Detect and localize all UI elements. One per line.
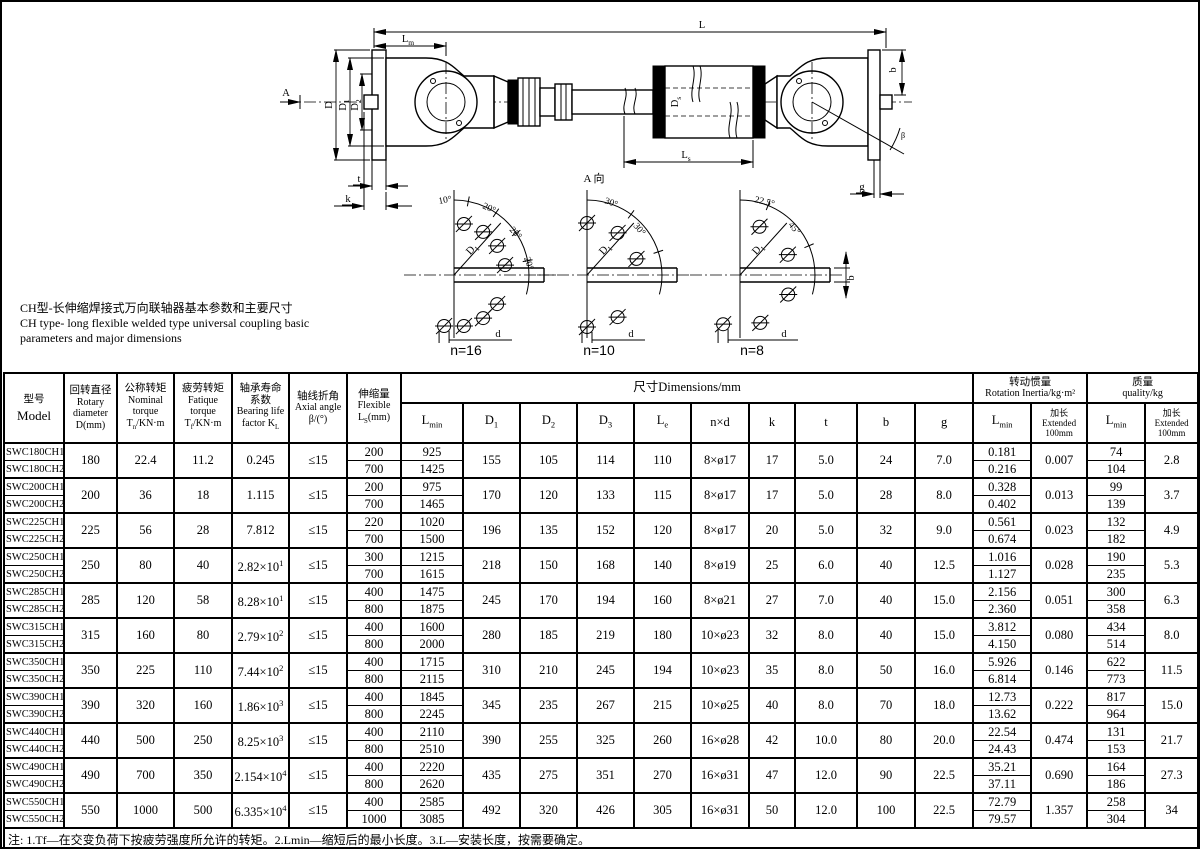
spec-cell: 1475 bbox=[401, 583, 463, 601]
spec-row: SWC250CH125080402.82×101≤153001215218150… bbox=[4, 548, 1198, 566]
spec-cell: 10×ø23 bbox=[691, 653, 749, 688]
spec-cell: 215 bbox=[634, 688, 691, 723]
spec-row: SWC490CH14907003502.154×104≤154002220435… bbox=[4, 758, 1198, 776]
spec-row: SWC225CH122556287.812≤152201020196135152… bbox=[4, 513, 1198, 531]
spec-cell: 7.44×102 bbox=[232, 653, 289, 688]
spec-cell: 8×ø19 bbox=[691, 548, 749, 583]
note-row-zh: 注: 1.Tf—在交变负荷下按疲劳强度所允许的转矩。2.Lmin—缩短后的最小长… bbox=[4, 828, 1198, 849]
spec-cell: 700 bbox=[347, 461, 401, 479]
col-header-inertia-lmin: Lmin bbox=[973, 403, 1031, 443]
spec-cell: SWC350CH1 bbox=[4, 653, 64, 671]
spec-cell: 0.051 bbox=[1031, 583, 1087, 618]
spec-cell: 24 bbox=[857, 443, 915, 478]
spec-cell: 72.79 bbox=[973, 793, 1031, 811]
spec-cell: 8.0 bbox=[795, 653, 857, 688]
seal-ring bbox=[653, 66, 665, 138]
seal-ring bbox=[753, 66, 765, 138]
datasheet-page: L Lm A D D1 D2 Ds t k bbox=[0, 0, 1200, 849]
spec-table-body: SWC180CH118022.411.20.245≤15200925155105… bbox=[4, 443, 1198, 828]
spec-cell: 80 bbox=[174, 618, 232, 653]
spec-cell: 35 bbox=[749, 653, 795, 688]
col-group-inertia: 转动惯量Rotation Inertia/kg·m² bbox=[973, 373, 1087, 403]
spec-cell: ≤15 bbox=[289, 478, 347, 513]
col-header-k: k bbox=[749, 403, 795, 443]
spec-cell: 12.5 bbox=[915, 548, 973, 583]
spec-cell: 350 bbox=[174, 758, 232, 793]
spec-cell: 6.0 bbox=[795, 548, 857, 583]
title-zh: CH型-长伸缩焊接式万向联轴器基本参数和主要尺寸 bbox=[20, 301, 360, 316]
spec-cell: 12.0 bbox=[795, 793, 857, 828]
spec-cell: 200 bbox=[347, 443, 401, 461]
col-header-le: Le bbox=[634, 403, 691, 443]
spec-cell: 152 bbox=[577, 513, 634, 548]
col-header-bearing-life: 轴承寿命系数Bearing lifefactor KL bbox=[232, 373, 289, 443]
spec-cell: 700 bbox=[347, 496, 401, 514]
spec-cell: 400 bbox=[347, 793, 401, 811]
spec-cell: 0.690 bbox=[1031, 758, 1087, 793]
spec-cell: 20.0 bbox=[915, 723, 973, 758]
spec-cell: 32 bbox=[749, 618, 795, 653]
spec-cell: 32 bbox=[857, 513, 915, 548]
spec-cell: 153 bbox=[1087, 741, 1145, 759]
spec-cell: 440 bbox=[64, 723, 117, 758]
spec-table-wrap: 型号Model 回转直径RotarydiameterD(mm) 公称转矩Nomi… bbox=[3, 372, 1199, 849]
spec-cell: 22.5 bbox=[915, 758, 973, 793]
diagram-D1-label: D1 bbox=[464, 241, 481, 258]
spec-cell: 42 bbox=[749, 723, 795, 758]
diagram-D1-label: D1 bbox=[597, 241, 614, 258]
spec-cell: 2.154×104 bbox=[232, 758, 289, 793]
spec-cell: ≤15 bbox=[289, 513, 347, 548]
col-header-mass-extended: 加长Extended100mm bbox=[1145, 403, 1198, 443]
spec-cell: 700 bbox=[347, 566, 401, 584]
spec-cell: 160 bbox=[117, 618, 174, 653]
spec-cell: 28 bbox=[857, 478, 915, 513]
dim-b-label: b bbox=[888, 67, 899, 72]
col-header-model: 型号Model bbox=[4, 373, 64, 443]
spec-cell: 196 bbox=[463, 513, 520, 548]
spec-cell: 2.79×102 bbox=[232, 618, 289, 653]
spec-cell: 2.8 bbox=[1145, 443, 1198, 478]
spec-cell: 27.3 bbox=[1145, 758, 1198, 793]
col-group-dimensions: 尺寸Dimensions/mm bbox=[401, 373, 973, 403]
spec-cell: SWC250CH1 bbox=[4, 548, 64, 566]
spec-cell: 8.25×103 bbox=[232, 723, 289, 758]
spec-cell: 120 bbox=[634, 513, 691, 548]
dim-L-label: L bbox=[699, 20, 705, 31]
spec-cell: ≤15 bbox=[289, 793, 347, 828]
title-en-line2: parameters and major dimensions bbox=[20, 331, 360, 346]
spec-cell: 1.127 bbox=[973, 566, 1031, 584]
spec-cell: 5.3 bbox=[1145, 548, 1198, 583]
spec-cell: 40 bbox=[749, 688, 795, 723]
spec-cell: 17 bbox=[749, 443, 795, 478]
spec-cell: 79.57 bbox=[973, 811, 1031, 829]
spec-cell: 700 bbox=[347, 531, 401, 549]
spec-cell: 170 bbox=[463, 478, 520, 513]
spec-cell: 114 bbox=[577, 443, 634, 478]
spec-cell: SWC180CH2 bbox=[4, 461, 64, 479]
spec-cell: 190 bbox=[1087, 548, 1145, 566]
spec-cell: SWC490CH2 bbox=[4, 776, 64, 794]
spec-cell: 1000 bbox=[347, 811, 401, 829]
left-key bbox=[364, 95, 378, 109]
spec-cell: 0.013 bbox=[1031, 478, 1087, 513]
spec-cell: 800 bbox=[347, 706, 401, 724]
spec-cell: 800 bbox=[347, 601, 401, 619]
spec-cell: 258 bbox=[1087, 793, 1145, 811]
spec-cell: 1.86×103 bbox=[232, 688, 289, 723]
spec-cell: 250 bbox=[174, 723, 232, 758]
spec-table: 型号Model 回转直径RotarydiameterD(mm) 公称转矩Nomi… bbox=[3, 372, 1199, 849]
spec-cell: 2585 bbox=[401, 793, 463, 811]
diagram-angle-label: 20° bbox=[521, 256, 536, 272]
spec-cell: 40 bbox=[857, 583, 915, 618]
spec-cell: 800 bbox=[347, 741, 401, 759]
spec-cell: 132 bbox=[1087, 513, 1145, 531]
col-header-axial-angle: 轴线折角Axial angleβ/(°) bbox=[289, 373, 347, 443]
spec-cell: 16×ø31 bbox=[691, 758, 749, 793]
spec-cell: 2.156 bbox=[973, 583, 1031, 601]
spec-cell: SWC350CH2 bbox=[4, 671, 64, 689]
spec-cell: 1215 bbox=[401, 548, 463, 566]
spec-cell: 200 bbox=[347, 478, 401, 496]
spec-cell: 200 bbox=[64, 478, 117, 513]
spec-cell: 964 bbox=[1087, 706, 1145, 724]
spec-cell: 1600 bbox=[401, 618, 463, 636]
spec-cell: 186 bbox=[1087, 776, 1145, 794]
spec-cell: 37.11 bbox=[973, 776, 1031, 794]
spec-cell: 400 bbox=[347, 583, 401, 601]
spec-cell: 390 bbox=[463, 723, 520, 758]
spec-cell: ≤15 bbox=[289, 688, 347, 723]
spec-cell: 15.0 bbox=[915, 583, 973, 618]
spec-cell: 358 bbox=[1087, 601, 1145, 619]
spec-cell: ≤15 bbox=[289, 548, 347, 583]
spec-cell: 0.245 bbox=[232, 443, 289, 478]
spec-cell: 1.357 bbox=[1031, 793, 1087, 828]
spec-cell: 70 bbox=[857, 688, 915, 723]
spec-cell: 28 bbox=[174, 513, 232, 548]
spec-cell: SWC390CH2 bbox=[4, 706, 64, 724]
spec-cell: 0.561 bbox=[973, 513, 1031, 531]
spec-cell: 17 bbox=[749, 478, 795, 513]
spec-cell: 400 bbox=[347, 723, 401, 741]
spec-cell: 400 bbox=[347, 653, 401, 671]
dim-D-label: D bbox=[324, 101, 335, 109]
spec-row: SWC550CH155010005006.335×104≤15400258549… bbox=[4, 793, 1198, 811]
spec-cell: 110 bbox=[174, 653, 232, 688]
spec-cell: 550 bbox=[64, 793, 117, 828]
spec-cell: 7.812 bbox=[232, 513, 289, 548]
spec-cell: 490 bbox=[64, 758, 117, 793]
spec-cell: 5.0 bbox=[795, 443, 857, 478]
spec-cell: 0.216 bbox=[973, 461, 1031, 479]
col-header-d2: D2 bbox=[520, 403, 577, 443]
spec-cell: 0.080 bbox=[1031, 618, 1087, 653]
spec-cell: 110 bbox=[634, 443, 691, 478]
spec-cell: 40 bbox=[857, 618, 915, 653]
spec-cell: 36 bbox=[117, 478, 174, 513]
spec-cell: 7.0 bbox=[915, 443, 973, 478]
dim-Lm-label: Lm bbox=[402, 34, 414, 47]
spec-cell: SWC285CH1 bbox=[4, 583, 64, 601]
spec-cell: 10×ø23 bbox=[691, 618, 749, 653]
spec-cell: 975 bbox=[401, 478, 463, 496]
spec-cell: 22.5 bbox=[915, 793, 973, 828]
spec-cell: 1.016 bbox=[973, 548, 1031, 566]
col-header-mass-lmin: Lmin bbox=[1087, 403, 1145, 443]
spec-cell: 194 bbox=[577, 583, 634, 618]
diagram-angle-label: 45° bbox=[786, 220, 803, 237]
spec-cell: SWC250CH2 bbox=[4, 566, 64, 584]
spec-cell: SWC550CH2 bbox=[4, 811, 64, 829]
spec-cell: 34 bbox=[1145, 793, 1198, 828]
spec-cell: 182 bbox=[1087, 531, 1145, 549]
spec-cell: 104 bbox=[1087, 461, 1145, 479]
spec-cell: 245 bbox=[577, 653, 634, 688]
spec-cell: 8.0 bbox=[1145, 618, 1198, 653]
spec-cell: 817 bbox=[1087, 688, 1145, 706]
spec-cell: 1.115 bbox=[232, 478, 289, 513]
spec-cell: 160 bbox=[634, 583, 691, 618]
spec-cell: 164 bbox=[1087, 758, 1145, 776]
dim-D2-label: D2 bbox=[350, 99, 363, 111]
spec-cell: 140 bbox=[634, 548, 691, 583]
spec-cell: 426 bbox=[577, 793, 634, 828]
spec-cell: 320 bbox=[520, 793, 577, 828]
spec-cell: 800 bbox=[347, 671, 401, 689]
spec-cell: 12.0 bbox=[795, 758, 857, 793]
spec-cell: 105 bbox=[520, 443, 577, 478]
spec-cell: 350 bbox=[64, 653, 117, 688]
spec-cell: 16.0 bbox=[915, 653, 973, 688]
spec-cell: SWC440CH1 bbox=[4, 723, 64, 741]
spec-cell: SWC285CH2 bbox=[4, 601, 64, 619]
spec-cell: 18.0 bbox=[915, 688, 973, 723]
spec-cell: 300 bbox=[1087, 583, 1145, 601]
spec-cell: 1500 bbox=[401, 531, 463, 549]
spec-cell: 8×ø17 bbox=[691, 513, 749, 548]
spec-cell: 622 bbox=[1087, 653, 1145, 671]
spec-row: SWC440CH14405002508.25×103≤1540021103902… bbox=[4, 723, 1198, 741]
spec-cell: 11.5 bbox=[1145, 653, 1198, 688]
spec-cell: 2510 bbox=[401, 741, 463, 759]
col-header-d1: D1 bbox=[463, 403, 520, 443]
col-header-d3: D3 bbox=[577, 403, 634, 443]
spec-cell: 255 bbox=[520, 723, 577, 758]
spec-cell: SWC490CH1 bbox=[4, 758, 64, 776]
diagram-count-label: n=16 bbox=[450, 342, 482, 358]
spec-cell: 235 bbox=[520, 688, 577, 723]
spec-cell: 56 bbox=[117, 513, 174, 548]
spec-cell: 120 bbox=[117, 583, 174, 618]
spec-cell: 120 bbox=[520, 478, 577, 513]
spec-cell: 99 bbox=[1087, 478, 1145, 496]
spec-cell: 5.926 bbox=[973, 653, 1031, 671]
spec-cell: 5.0 bbox=[795, 513, 857, 548]
spec-cell: 50 bbox=[749, 793, 795, 828]
spec-cell: 2110 bbox=[401, 723, 463, 741]
spec-cell: 280 bbox=[463, 618, 520, 653]
spec-cell: 700 bbox=[117, 758, 174, 793]
beta-angle-label: β bbox=[901, 131, 905, 140]
title-block: CH型-长伸缩焊接式万向联轴器基本参数和主要尺寸 CH type- long f… bbox=[20, 301, 360, 346]
spec-cell: 2.82×101 bbox=[232, 548, 289, 583]
spec-cell: 400 bbox=[347, 758, 401, 776]
spec-cell: 133 bbox=[577, 478, 634, 513]
spec-cell: 13.62 bbox=[973, 706, 1031, 724]
spec-cell: 500 bbox=[174, 793, 232, 828]
col-header-b: b bbox=[857, 403, 915, 443]
spec-cell: 0.028 bbox=[1031, 548, 1087, 583]
spec-cell: 50 bbox=[857, 653, 915, 688]
spec-cell: 2.360 bbox=[973, 601, 1031, 619]
spec-cell: 225 bbox=[64, 513, 117, 548]
spec-cell: 74 bbox=[1087, 443, 1145, 461]
spec-cell: 10.0 bbox=[795, 723, 857, 758]
title-en-line1: CH type- long flexible welded type unive… bbox=[20, 316, 360, 331]
spec-cell: 800 bbox=[347, 636, 401, 654]
spec-cell: 8.0 bbox=[915, 478, 973, 513]
diagram-d-label: d bbox=[781, 329, 787, 340]
spec-cell: 225 bbox=[117, 653, 174, 688]
spec-cell: 6.3 bbox=[1145, 583, 1198, 618]
spec-cell: 351 bbox=[577, 758, 634, 793]
spec-cell: 8.0 bbox=[795, 618, 857, 653]
spec-row: SWC350CH13502251107.44×102≤1540017153102… bbox=[4, 653, 1198, 671]
spec-cell: 773 bbox=[1087, 671, 1145, 689]
spec-cell: SWC315CH1 bbox=[4, 618, 64, 636]
spec-cell: 15.0 bbox=[1145, 688, 1198, 723]
spec-cell: 20 bbox=[749, 513, 795, 548]
spec-cell: 1000 bbox=[117, 793, 174, 828]
spec-cell: SWC225CH1 bbox=[4, 513, 64, 531]
spec-row: SWC315CH1315160802.79×102≤15400160028018… bbox=[4, 618, 1198, 636]
spec-row: SWC180CH118022.411.20.245≤15200925155105… bbox=[4, 443, 1198, 461]
spec-cell: 8.0 bbox=[795, 688, 857, 723]
spec-cell: 100 bbox=[857, 793, 915, 828]
spec-cell: 1465 bbox=[401, 496, 463, 514]
spec-cell: 2245 bbox=[401, 706, 463, 724]
spec-row: SWC285CH1285120588.28×101≤15400147524517… bbox=[4, 583, 1198, 601]
spec-cell: 115 bbox=[634, 478, 691, 513]
spec-cell: SWC180CH1 bbox=[4, 443, 64, 461]
spec-row: SWC390CH13903201601.86×103≤1540018453452… bbox=[4, 688, 1198, 706]
spec-cell: 150 bbox=[520, 548, 577, 583]
col-header-inertia-extended: 加长Extended100mm bbox=[1031, 403, 1087, 443]
spec-cell: 5.0 bbox=[795, 478, 857, 513]
spec-cell: ≤15 bbox=[289, 583, 347, 618]
spec-cell: 6.814 bbox=[973, 671, 1031, 689]
spec-cell: 514 bbox=[1087, 636, 1145, 654]
diagram-count-label: n=10 bbox=[583, 342, 615, 358]
col-header-flexible: 伸缩量FlexibleLS(mm) bbox=[347, 373, 401, 443]
spec-cell: 18 bbox=[174, 478, 232, 513]
spec-cell: 194 bbox=[634, 653, 691, 688]
spec-cell: 8×ø21 bbox=[691, 583, 749, 618]
spec-cell: 500 bbox=[117, 723, 174, 758]
spec-cell: 3.812 bbox=[973, 618, 1031, 636]
col-header-fatigue-torque: 疲劳转矩FatiquetorqueTf/KN·m bbox=[174, 373, 232, 443]
spec-cell: 2620 bbox=[401, 776, 463, 794]
note-zh: 注: 1.Tf—在交变负荷下按疲劳强度所允许的转矩。2.Lmin—缩短后的最小长… bbox=[4, 828, 1198, 849]
spec-cell: 0.023 bbox=[1031, 513, 1087, 548]
spec-cell: 35.21 bbox=[973, 758, 1031, 776]
spec-cell: 219 bbox=[577, 618, 634, 653]
spec-cell: 434 bbox=[1087, 618, 1145, 636]
spec-cell: 8.28×101 bbox=[232, 583, 289, 618]
spec-cell: 3085 bbox=[401, 811, 463, 829]
spec-cell: 0.007 bbox=[1031, 443, 1087, 478]
spec-cell: 310 bbox=[463, 653, 520, 688]
spec-cell: 185 bbox=[520, 618, 577, 653]
spec-cell: 2220 bbox=[401, 758, 463, 776]
spec-cell: 22.54 bbox=[973, 723, 1031, 741]
spec-cell: 25 bbox=[749, 548, 795, 583]
spec-cell: 80 bbox=[857, 723, 915, 758]
spec-cell: ≤15 bbox=[289, 758, 347, 793]
spec-cell: 16×ø28 bbox=[691, 723, 749, 758]
spec-cell: 40 bbox=[174, 548, 232, 583]
spec-cell: 2000 bbox=[401, 636, 463, 654]
spec-cell: 3.7 bbox=[1145, 478, 1198, 513]
spec-cell: SWC550CH1 bbox=[4, 793, 64, 811]
spec-cell: 27 bbox=[749, 583, 795, 618]
spec-cell: 304 bbox=[1087, 811, 1145, 829]
spec-cell: 131 bbox=[1087, 723, 1145, 741]
spec-cell: 250 bbox=[64, 548, 117, 583]
spec-cell: 270 bbox=[634, 758, 691, 793]
spec-cell: 139 bbox=[1087, 496, 1145, 514]
col-header-lmin: Lmin bbox=[401, 403, 463, 443]
diagram-b-label: b bbox=[846, 275, 857, 280]
dim-t-label: t bbox=[358, 174, 361, 185]
spec-cell: 11.2 bbox=[174, 443, 232, 478]
spec-cell: SWC225CH2 bbox=[4, 531, 64, 549]
diagram-angle-label: 20° bbox=[507, 225, 524, 242]
dim-Ls-label: Ls bbox=[681, 150, 690, 163]
spec-cell: ≤15 bbox=[289, 443, 347, 478]
diagram-count-label: n=8 bbox=[740, 342, 764, 358]
spec-cell: SWC200CH1 bbox=[4, 478, 64, 496]
dim-g-label: g bbox=[859, 182, 865, 193]
bolt-diagrams: D1d10°20°20°20°n=16D1d30°30°n=10D1d22.5°… bbox=[404, 190, 857, 358]
diagram-angle-label: 22.5° bbox=[753, 194, 776, 210]
spec-cell: SWC390CH1 bbox=[4, 688, 64, 706]
spec-cell: 4.9 bbox=[1145, 513, 1198, 548]
spec-cell: ≤15 bbox=[289, 618, 347, 653]
spec-cell: 8×ø17 bbox=[691, 478, 749, 513]
spec-cell: 135 bbox=[520, 513, 577, 548]
spec-cell: 435 bbox=[463, 758, 520, 793]
spec-cell: 12.73 bbox=[973, 688, 1031, 706]
seal-ring bbox=[508, 80, 518, 124]
spec-row: SWC200CH120036181.115≤152009751701201331… bbox=[4, 478, 1198, 496]
right-flange bbox=[868, 50, 880, 160]
spec-cell: 160 bbox=[174, 688, 232, 723]
col-header-nxd: n×d bbox=[691, 403, 749, 443]
diagram-d-label: d bbox=[628, 329, 634, 340]
col-header-rotary-diameter: 回转直径RotarydiameterD(mm) bbox=[64, 373, 117, 443]
spec-cell: 210 bbox=[520, 653, 577, 688]
spec-cell: 15.0 bbox=[915, 618, 973, 653]
spec-cell: SWC440CH2 bbox=[4, 741, 64, 759]
intermediate-shaft bbox=[572, 90, 653, 114]
spec-cell: 9.0 bbox=[915, 513, 973, 548]
spec-cell: 275 bbox=[520, 758, 577, 793]
diagram-angle-label: 30° bbox=[603, 195, 619, 210]
